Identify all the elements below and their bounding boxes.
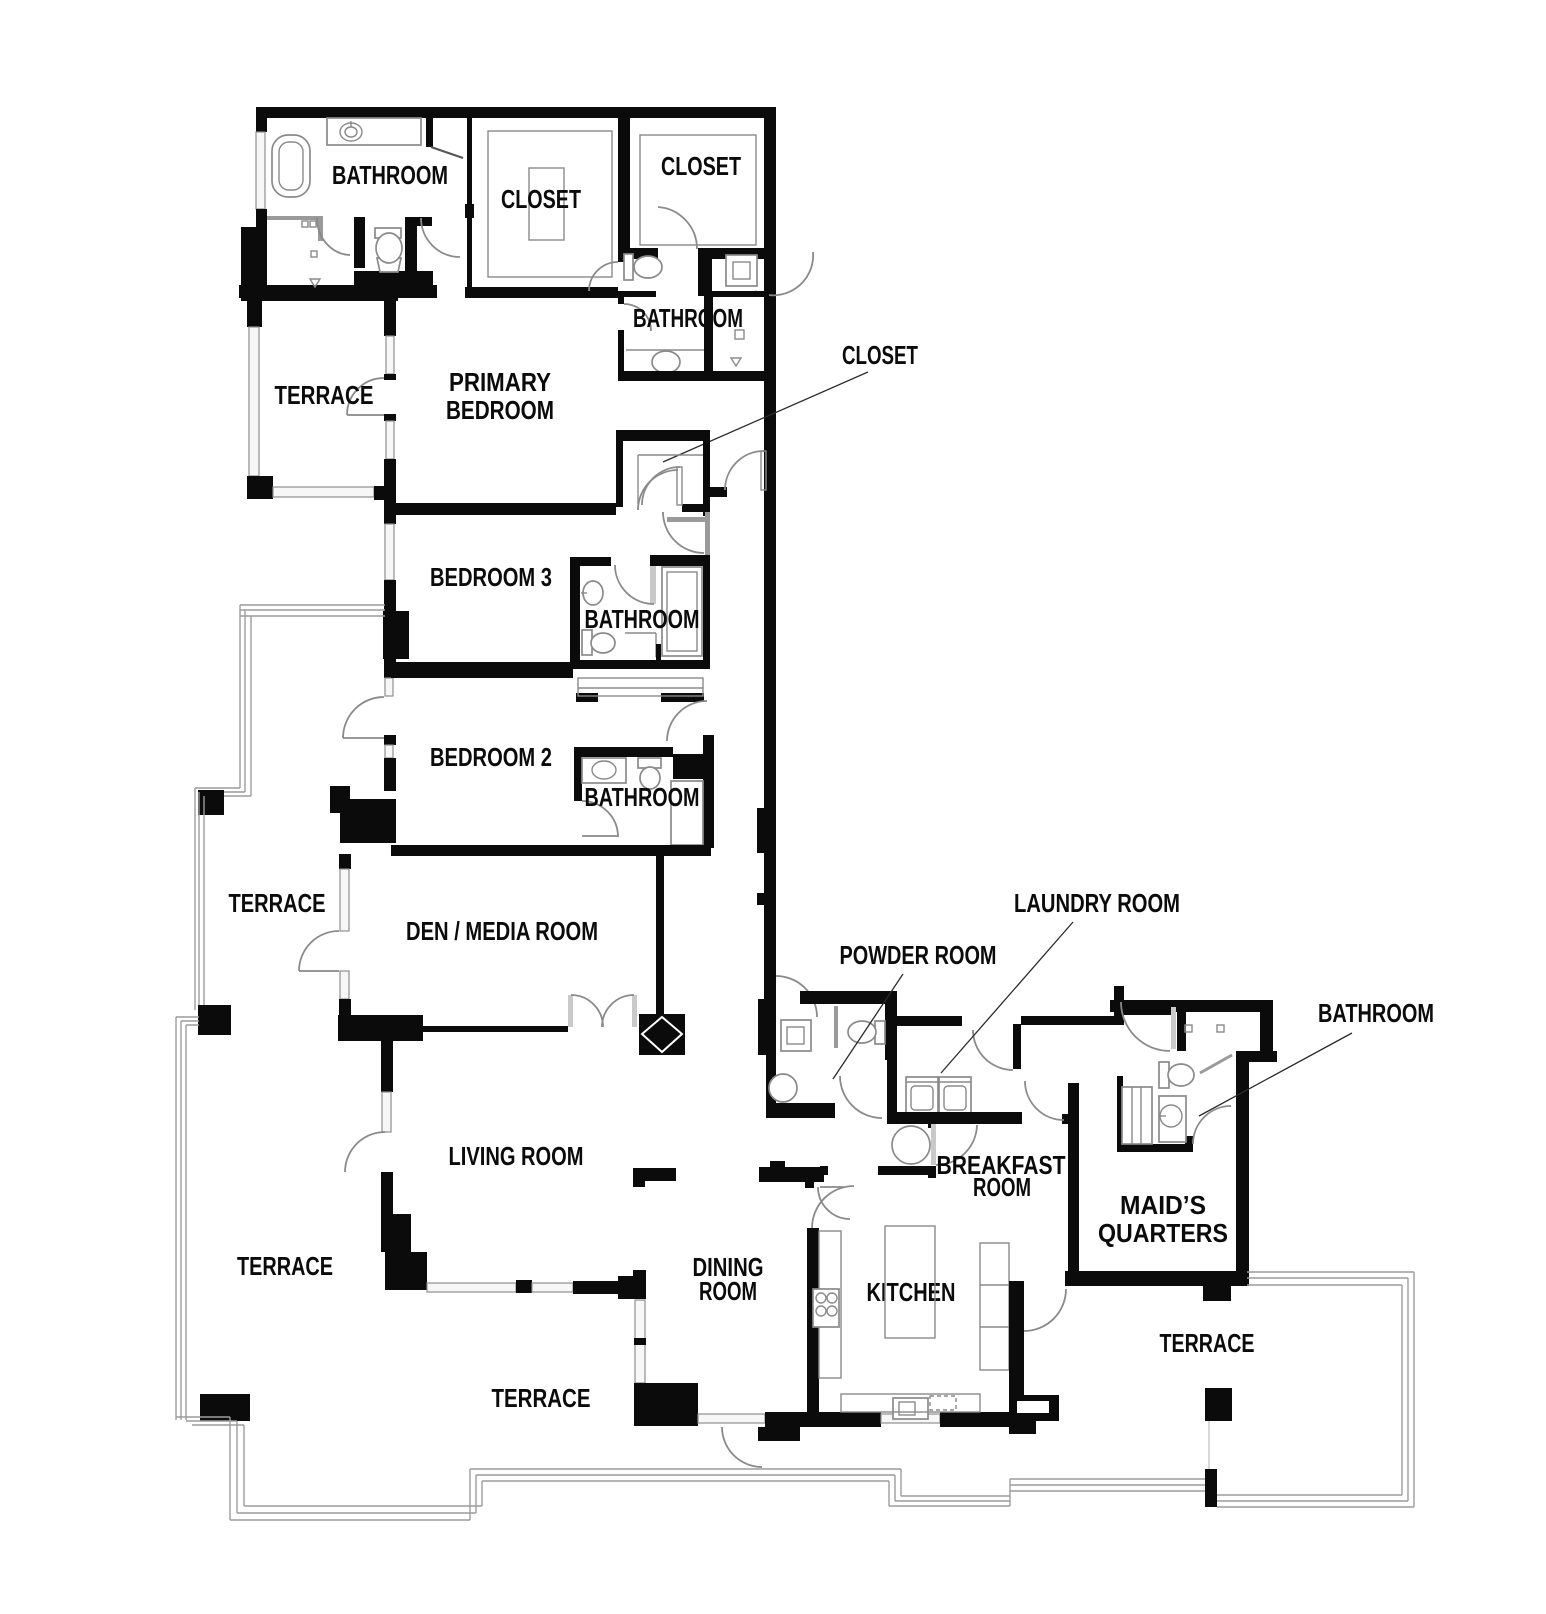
svg-text:BEDROOM: BEDROOM — [446, 395, 554, 425]
svg-text:BATHROOM: BATHROOM — [332, 160, 448, 190]
svg-text:LAUNDRY ROOM: LAUNDRY ROOM — [1014, 888, 1180, 918]
svg-text:BEDROOM 3: BEDROOM 3 — [430, 562, 552, 592]
svg-text:KITCHEN: KITCHEN — [867, 1277, 956, 1307]
svg-text:TERRACE: TERRACE — [237, 1251, 333, 1281]
svg-text:POWDER ROOM: POWDER ROOM — [840, 940, 997, 970]
svg-text:MAID’S: MAID’S — [1120, 1190, 1206, 1220]
svg-text:TERRACE: TERRACE — [492, 1383, 591, 1413]
svg-text:BATHROOM: BATHROOM — [633, 303, 743, 333]
svg-text:QUARTERS: QUARTERS — [1098, 1218, 1228, 1248]
svg-text:LIVING ROOM: LIVING ROOM — [449, 1141, 584, 1171]
svg-text:BATHROOM: BATHROOM — [585, 782, 700, 812]
svg-text:BEDROOM 2: BEDROOM 2 — [430, 742, 552, 772]
svg-text:CLOSET: CLOSET — [842, 340, 918, 370]
svg-text:PRIMARY: PRIMARY — [449, 367, 551, 397]
svg-text:DEN / MEDIA ROOM: DEN / MEDIA ROOM — [406, 916, 598, 946]
svg-text:BATHROOM: BATHROOM — [585, 604, 700, 634]
svg-text:TERRACE: TERRACE — [229, 888, 326, 918]
svg-text:CLOSET: CLOSET — [661, 151, 741, 181]
svg-text:CLOSET: CLOSET — [501, 184, 581, 214]
svg-text:TERRACE: TERRACE — [1160, 1328, 1255, 1358]
svg-text:ROOM: ROOM — [699, 1276, 757, 1306]
svg-text:TERRACE: TERRACE — [275, 380, 374, 410]
svg-text:ROOM: ROOM — [973, 1172, 1031, 1202]
svg-text:BATHROOM: BATHROOM — [1318, 998, 1434, 1028]
